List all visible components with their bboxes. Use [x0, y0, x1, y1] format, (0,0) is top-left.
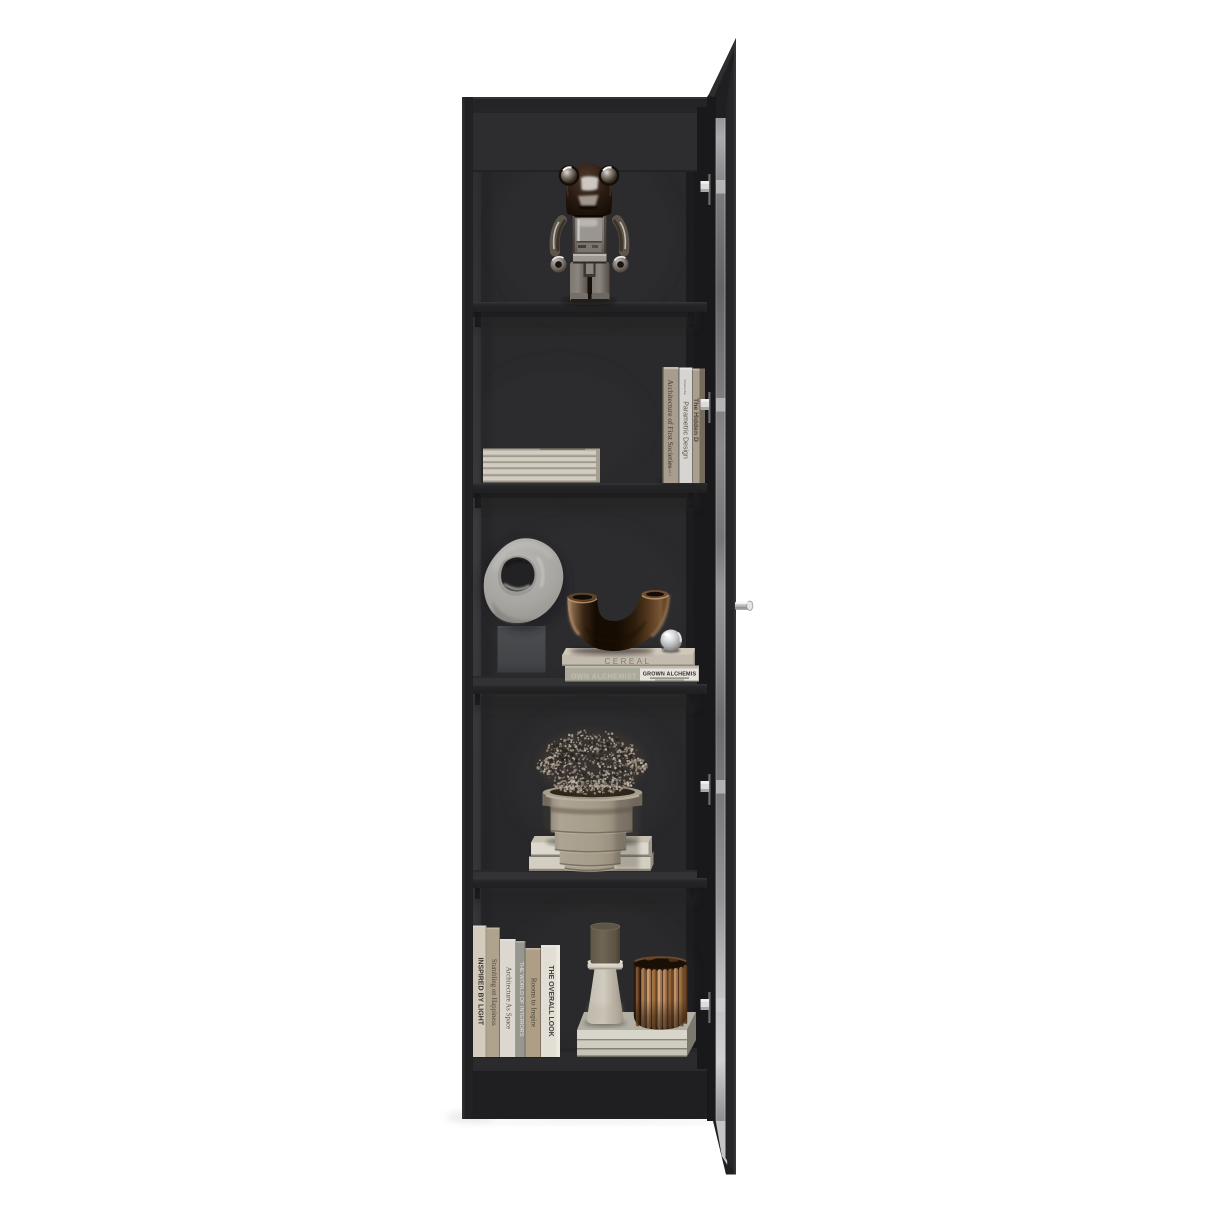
svg-text:Edward S.: Edward S.: [668, 463, 672, 476]
svg-text:THE WORLD OF INTERIORS: THE WORLD OF INTERIORS: [518, 962, 524, 1037]
svg-text:OWN ALCHEMIST: OWN ALCHEMIST: [571, 674, 637, 681]
svg-text:INSPIRED BY LIGHT: INSPIRED BY LIGHT: [476, 957, 483, 1025]
svg-text:Architecture of First Societie: Architecture of First Societies: [666, 380, 675, 469]
svg-text:Rooms to Inspire: Rooms to Inspire: [530, 978, 538, 1028]
svg-text:THE OVERALL LOOK: THE OVERALL LOOK: [547, 965, 554, 1036]
svg-text:The Hidden D: The Hidden D: [692, 398, 699, 442]
svg-text:Architecture As Space: Architecture As Space: [505, 967, 513, 1030]
svg-text:Stumbling on Happiness: Stumbling on Happiness: [490, 959, 497, 1026]
svg-text:Parametric Design: Parametric Design: [682, 401, 689, 459]
svg-text:CEREAL: CEREAL: [604, 657, 651, 666]
svg-text:GROWN ALCHEMIS: GROWN ALCHEMIS: [643, 672, 697, 678]
svg-text:Antoine Bal: Antoine Bal: [683, 379, 687, 395]
